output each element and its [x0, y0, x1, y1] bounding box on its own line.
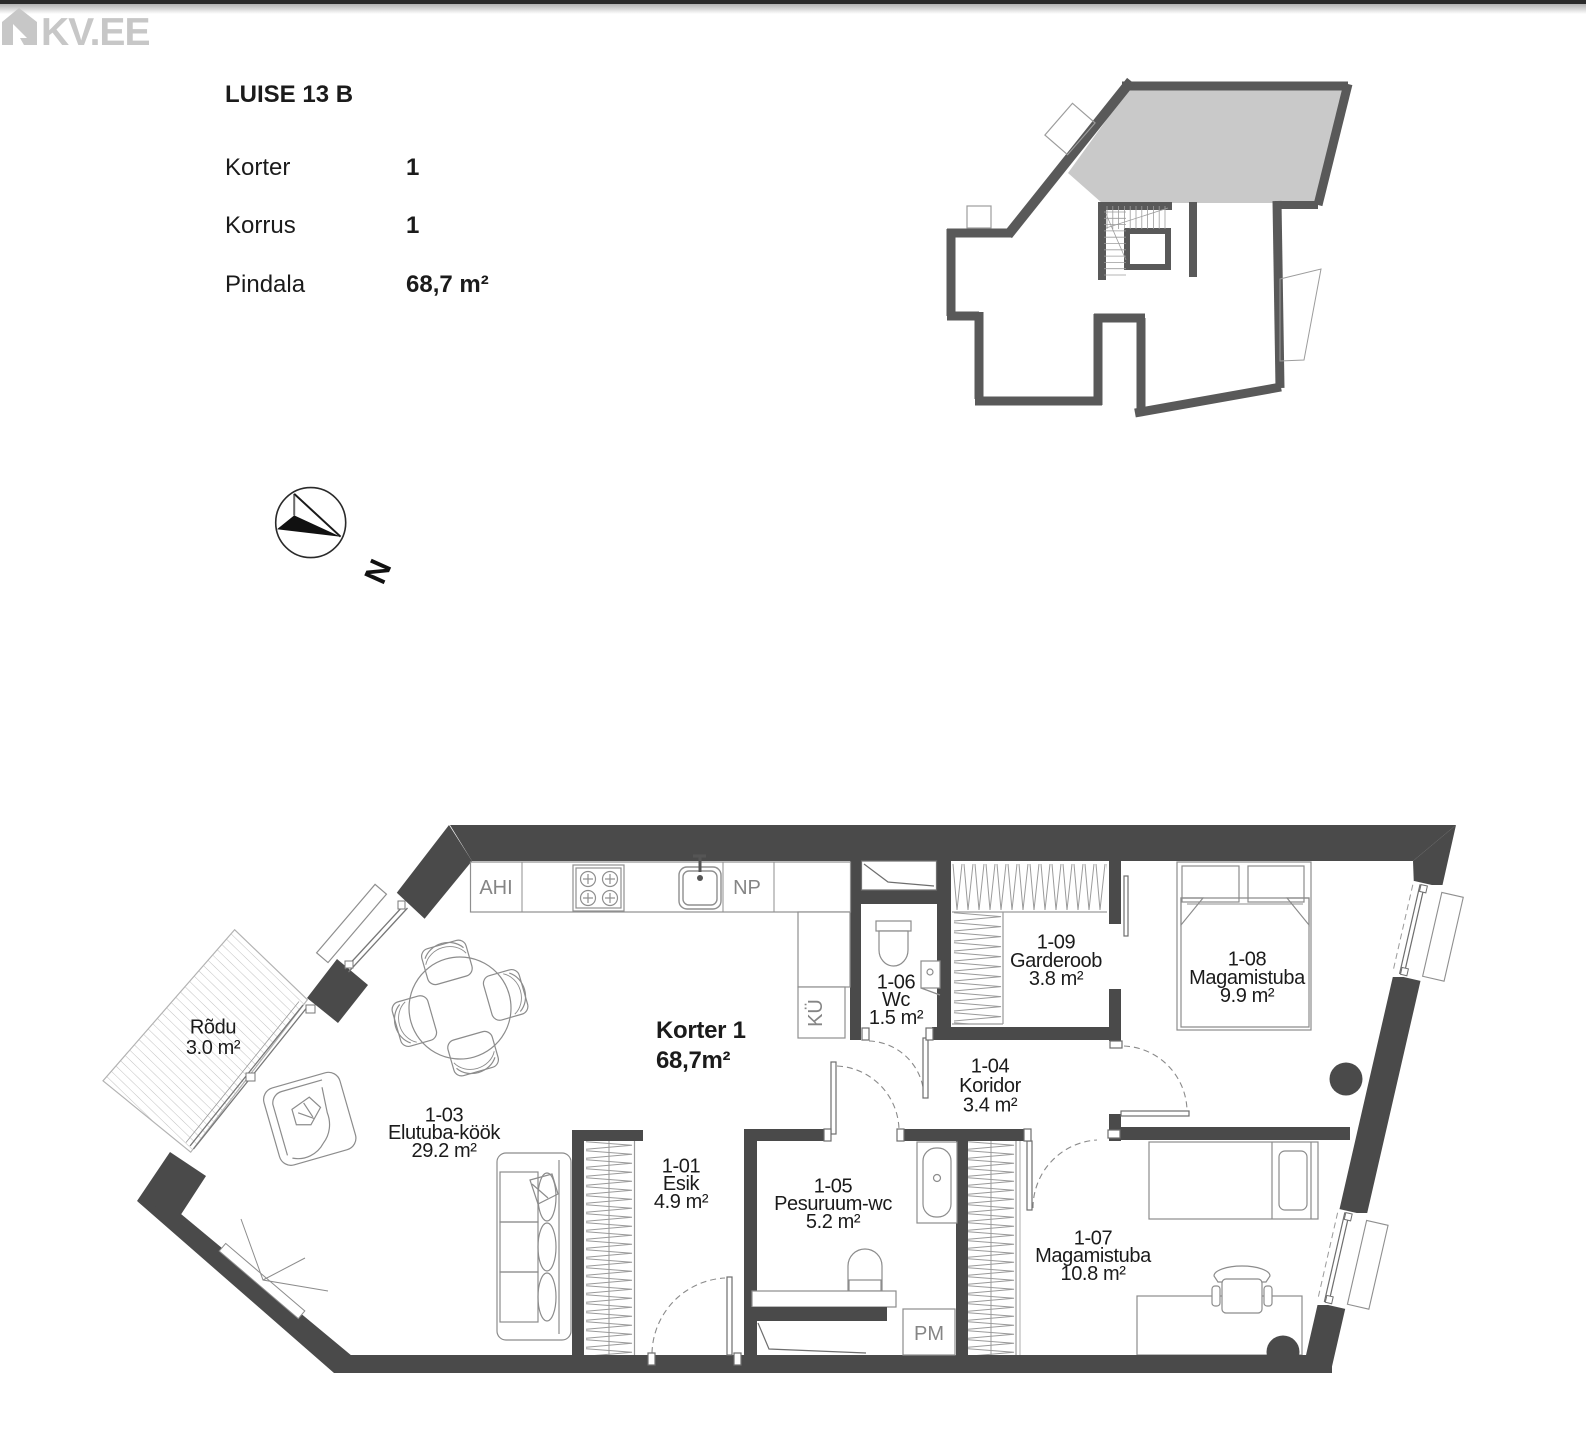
svg-text:68,7m²: 68,7m² [656, 1047, 731, 1074]
svg-text:KÜ: KÜ [805, 999, 827, 1027]
svg-text:Rõdu: Rõdu [190, 1017, 236, 1039]
svg-text:4.9 m²: 4.9 m² [654, 1191, 709, 1213]
svg-text:10.8 m²: 10.8 m² [1060, 1263, 1126, 1285]
svg-text:1: 1 [406, 154, 419, 181]
svg-text:3.0 m²: 3.0 m² [186, 1037, 241, 1059]
svg-text:1: 1 [406, 212, 419, 239]
svg-text:Korrus: Korrus [225, 212, 296, 239]
svg-text:Pindala: Pindala [225, 271, 306, 298]
svg-text:68,7 m²: 68,7 m² [406, 271, 489, 298]
svg-text:KV.EE: KV.EE [41, 11, 149, 54]
svg-text:AHI: AHI [479, 877, 512, 899]
svg-text:9.9 m²: 9.9 m² [1220, 985, 1275, 1007]
svg-text:Korter: Korter [225, 154, 290, 181]
svg-text:29.2 m²: 29.2 m² [411, 1140, 477, 1162]
svg-text:Korter 1: Korter 1 [656, 1017, 746, 1044]
svg-text:3.8 m²: 3.8 m² [1029, 968, 1084, 990]
svg-text:3.4 m²: 3.4 m² [963, 1095, 1018, 1117]
svg-text:NP: NP [733, 877, 761, 899]
svg-text:5.2 m²: 5.2 m² [806, 1211, 861, 1233]
svg-text:LUISE 13 B: LUISE 13 B [225, 81, 353, 108]
svg-text:1.5 m²: 1.5 m² [869, 1007, 924, 1029]
svg-text:PM: PM [914, 1323, 944, 1345]
